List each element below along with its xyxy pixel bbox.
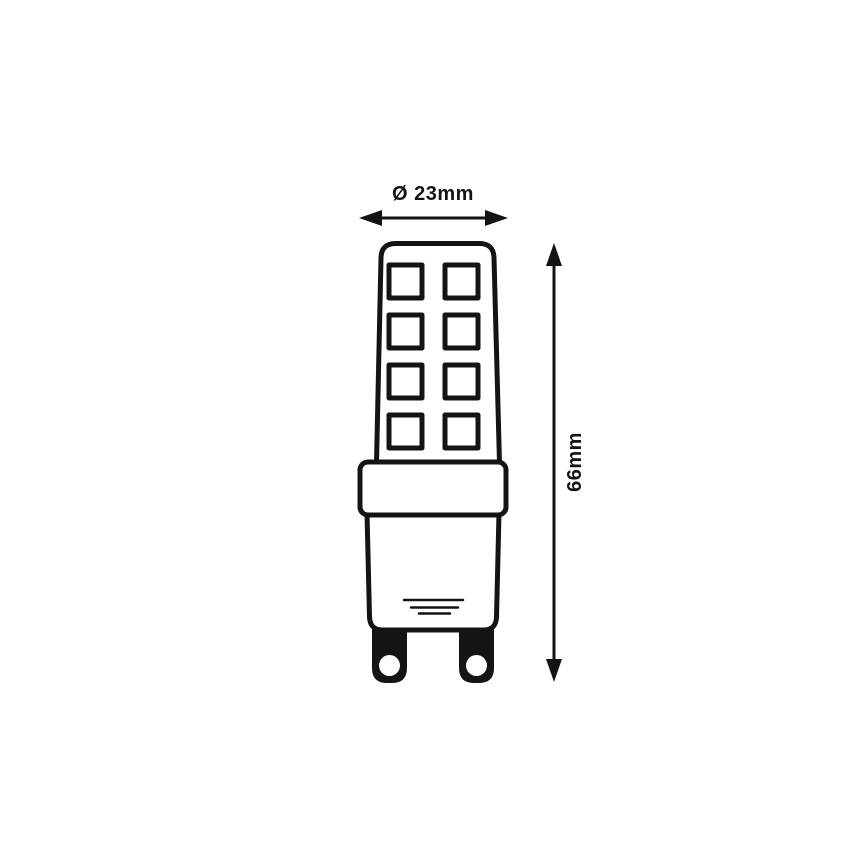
led-chip <box>389 315 422 348</box>
right-pin-hole <box>466 655 487 676</box>
width-dimension-label: Ø 23mm <box>392 183 474 205</box>
led-chip <box>445 365 478 398</box>
led-chip <box>389 365 422 398</box>
collar <box>360 462 506 515</box>
led-chip <box>445 265 478 298</box>
height-arrow-top-head <box>546 243 562 266</box>
led-chip <box>389 265 422 298</box>
width-arrow-left-head <box>359 210 382 226</box>
led-chip <box>445 315 478 348</box>
width-arrow-right-head <box>485 210 508 226</box>
bulb-outline <box>360 244 506 683</box>
bulb-dimension-diagram: Ø 23mm 66mm <box>0 0 868 868</box>
led-chip <box>389 415 422 448</box>
drawing-area: Ø 23mm 66mm <box>0 0 868 868</box>
width-dimension <box>359 210 508 226</box>
height-dimension-label: 66mm <box>564 432 586 492</box>
led-chip <box>445 415 478 448</box>
line-art-root <box>359 210 562 682</box>
left-pin-hole <box>379 655 400 676</box>
height-arrow-bottom-head <box>546 659 562 682</box>
height-dimension <box>546 243 562 682</box>
